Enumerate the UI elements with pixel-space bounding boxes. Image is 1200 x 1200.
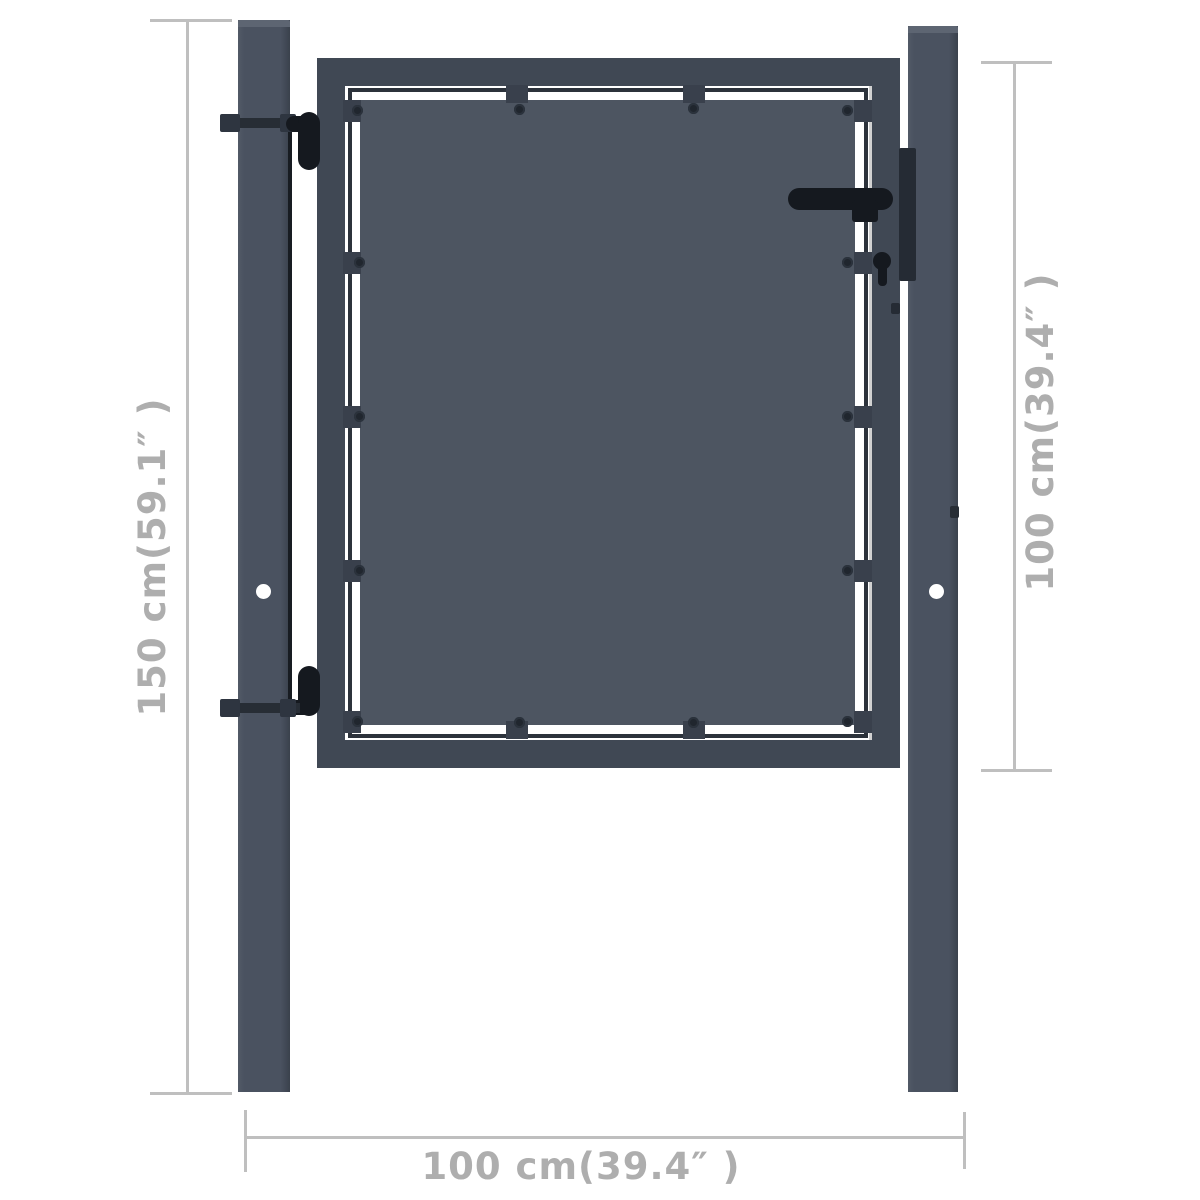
dim-gate-height-label: 100 cm(39.4″ ) [1020, 232, 1062, 632]
panel-screw [352, 716, 363, 727]
dim-post-height-line [186, 20, 189, 1094]
panel-clip [854, 406, 872, 428]
panel-clip [854, 560, 872, 582]
panel-screw [514, 104, 525, 115]
hinge-rod [288, 126, 292, 712]
dim-gate-height-line [1013, 62, 1016, 771]
right-post-hole [929, 584, 944, 599]
panel-screw [352, 105, 363, 116]
panel-screw [514, 717, 525, 728]
panel-screw [842, 257, 853, 268]
dim-post-height-cap-bottom [150, 1092, 232, 1095]
latch-pin [891, 303, 900, 314]
panel-clip [506, 85, 528, 103]
right-post-top-bevel [908, 26, 958, 33]
panel-screw [688, 717, 699, 728]
dim-post-height-cap-top [150, 19, 232, 22]
bottom-hinge-washer [280, 699, 296, 717]
left-post-hole [256, 584, 271, 599]
left-post [238, 20, 290, 1092]
keyhole-icon-body [878, 264, 887, 286]
panel-clip [683, 85, 705, 103]
panel-clip [854, 711, 872, 733]
left-post-top-bevel [238, 20, 290, 27]
panel-screw [354, 257, 365, 268]
panel-screw [842, 105, 853, 116]
door-handle-neck [852, 200, 878, 222]
panel-screw [842, 716, 853, 727]
panel-clip [854, 100, 872, 122]
dim-gate-height-cap-top [981, 61, 1052, 64]
right-post-edge-bolt [950, 506, 959, 518]
gate-panel [360, 100, 855, 725]
panel-clip [854, 252, 872, 274]
panel-screw [354, 411, 365, 422]
panel-screw [688, 103, 699, 114]
panel-screw [354, 565, 365, 576]
dim-gate-width-cap-left [244, 1110, 247, 1172]
panel-screw [842, 565, 853, 576]
dim-gate-width-label: 100 cm(39.4″ ) [381, 1146, 781, 1190]
top-hinge-nut [220, 114, 240, 132]
dim-gate-width-cap-right [963, 1112, 966, 1169]
top-hinge-pin-sleeve [298, 112, 320, 170]
panel-screw [842, 411, 853, 422]
dim-post-height-label: 150 cm(59.1″ ) [132, 357, 174, 757]
latch-strike-plate [899, 148, 916, 281]
dim-gate-height-cap-bottom [981, 769, 1052, 772]
dim-gate-width-line [245, 1136, 965, 1139]
bottom-hinge-nut [220, 699, 240, 717]
product-dimension-diagram: 150 cm(59.1″ ) 100 cm(39.4″ ) 100 cm(39.… [0, 0, 1200, 1200]
